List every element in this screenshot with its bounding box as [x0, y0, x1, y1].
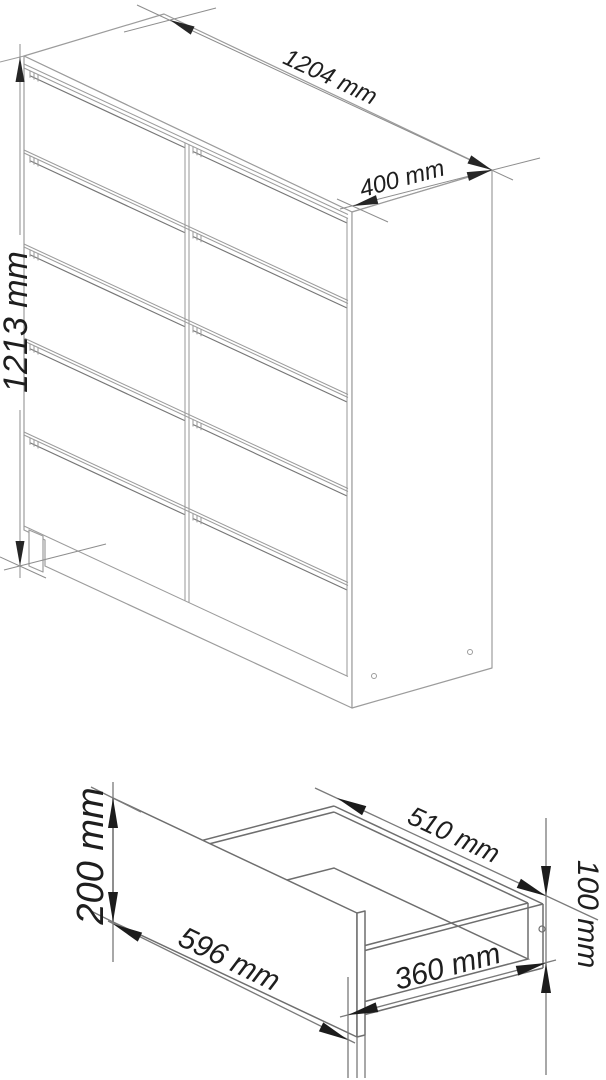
drawer-front-height-label: 200 mm [70, 787, 112, 925]
drawer-side-hole [539, 926, 545, 932]
cabinet-view: 1204 mm 400 mm 1213 mm [0, 5, 540, 708]
arrowhead [335, 793, 366, 815]
arrowhead [16, 57, 25, 82]
cabinet-foot [29, 530, 43, 572]
drawer-front-panel [113, 798, 357, 1037]
arrowhead [541, 866, 551, 896]
drawer-side-depth-label: 360 mm [391, 937, 504, 997]
cabinet-drawing [0, 14, 492, 708]
drawer-view: 200 mm 596 mm 510 mm 360 mm 100 mm [70, 782, 604, 1078]
diagram-page: 1204 mm 400 mm 1213 mm [0, 0, 606, 1080]
furniture-dimension-diagram: 1204 mm 400 mm 1213 mm [0, 0, 606, 1080]
drawer-front-panel-edge [357, 911, 365, 1037]
cabinet-side-panel [352, 170, 492, 708]
arrowhead [517, 879, 548, 901]
drawer-inner-width-label: 510 mm [403, 801, 504, 869]
drawer-side-height-label: 100 mm [571, 860, 604, 968]
arrowhead [16, 541, 25, 566]
cabinet-height-label: 1213 mm [0, 251, 35, 393]
